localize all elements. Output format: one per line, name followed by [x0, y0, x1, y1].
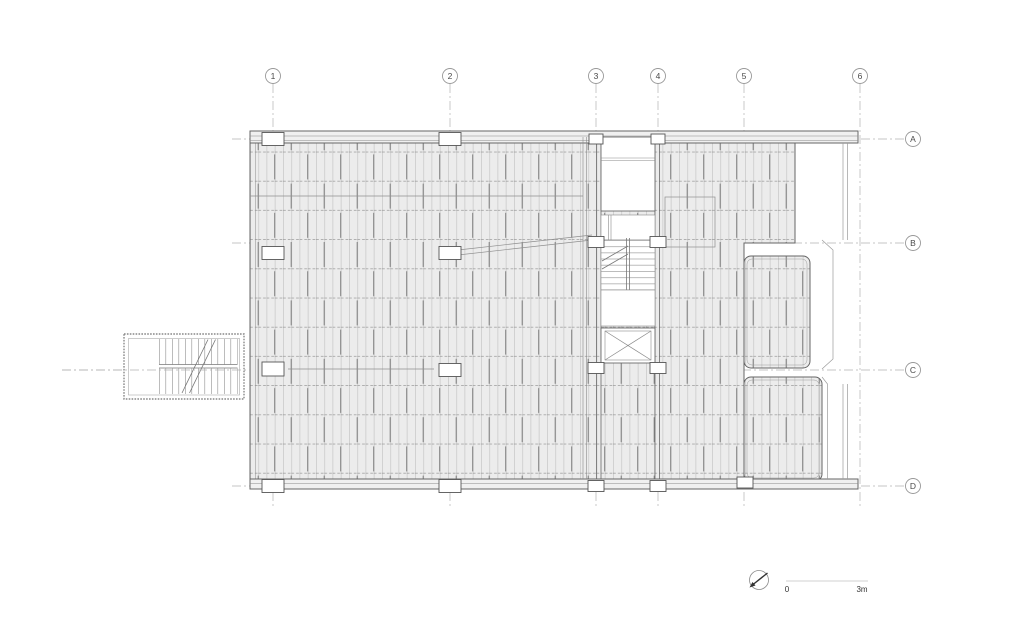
grid-bubble-row-a: A — [906, 132, 921, 147]
grid-bubble-row-c: C — [906, 363, 921, 378]
column-4a — [651, 134, 665, 144]
column-3b — [588, 237, 604, 248]
scale-bar-start-label: 0 — [785, 585, 790, 594]
grid-bubble-row-d: D — [906, 479, 921, 494]
column-1a — [262, 133, 284, 146]
column-1b — [262, 247, 284, 260]
grid-bubble-label-2: 2 — [448, 71, 453, 81]
top-edge-beam — [250, 131, 858, 143]
right-terrace-outline — [822, 143, 848, 479]
core-void-shaft — [601, 137, 655, 211]
core-upper-landing — [601, 215, 655, 240]
grid-bubble-label-4: 4 — [656, 71, 661, 81]
floor-plan-drawing: 1 2 3 4 5 6 A B — [0, 0, 1024, 629]
scale-bar: 0 3m — [785, 581, 868, 594]
column-3a — [589, 134, 603, 144]
grid-bubble-row-b: B — [906, 236, 921, 251]
grid-bubble-label-a: A — [910, 134, 916, 144]
bay-bumpout-c-d — [744, 377, 822, 481]
core-stair — [601, 238, 655, 291]
grid-bubble-column-4: 4 — [651, 69, 666, 84]
grid-bubble-column-5: 5 — [737, 69, 752, 84]
core-x-shaft — [601, 328, 655, 363]
column-5d — [737, 477, 753, 488]
grid-bubble-label-1: 1 — [271, 71, 276, 81]
grid-bubble-column-1: 1 — [266, 69, 281, 84]
external-stair-upper-flight — [159, 339, 238, 365]
column-3d — [588, 481, 604, 492]
grid-bubble-label-c: C — [910, 365, 916, 375]
grid-bubble-column-2: 2 — [443, 69, 458, 84]
column-1c — [262, 362, 284, 376]
main-slab-dark-joists — [250, 131, 795, 489]
column-3c — [588, 363, 604, 374]
grid-bubbles-right: A B C D — [906, 132, 921, 494]
column-4d — [650, 481, 666, 492]
floor-plan-sheet: 1 2 3 4 5 6 A B — [0, 0, 1024, 629]
grid-bubble-label-d: D — [910, 481, 916, 491]
bay-bumpout-b-c — [744, 256, 810, 368]
grid-bubbles-top: 1 2 3 4 5 6 — [266, 69, 868, 84]
grid-bubble-column-6: 6 — [853, 69, 868, 84]
floor-plate — [250, 131, 858, 489]
column-2c — [439, 364, 461, 377]
column-2d — [439, 480, 461, 493]
grid-bubble-label-5: 5 — [742, 71, 747, 81]
column-2b — [439, 247, 461, 260]
grid-bubble-label-b: B — [910, 238, 916, 248]
column-4b — [650, 237, 666, 248]
grid-bubble-label-3: 3 — [594, 71, 599, 81]
column-4c — [650, 363, 666, 374]
external-stair — [62, 334, 250, 399]
core-lower-landing — [601, 290, 655, 326]
scale-bar-end-label: 3m — [856, 585, 867, 594]
grid-bubble-label-6: 6 — [858, 71, 863, 81]
column-2a — [439, 133, 461, 146]
column-1d — [262, 480, 284, 493]
bottom-edge-beam — [250, 479, 858, 489]
external-stair-lower-flight — [159, 369, 238, 395]
grid-bubble-column-3: 3 — [589, 69, 604, 84]
north-arrow-icon — [750, 571, 769, 590]
